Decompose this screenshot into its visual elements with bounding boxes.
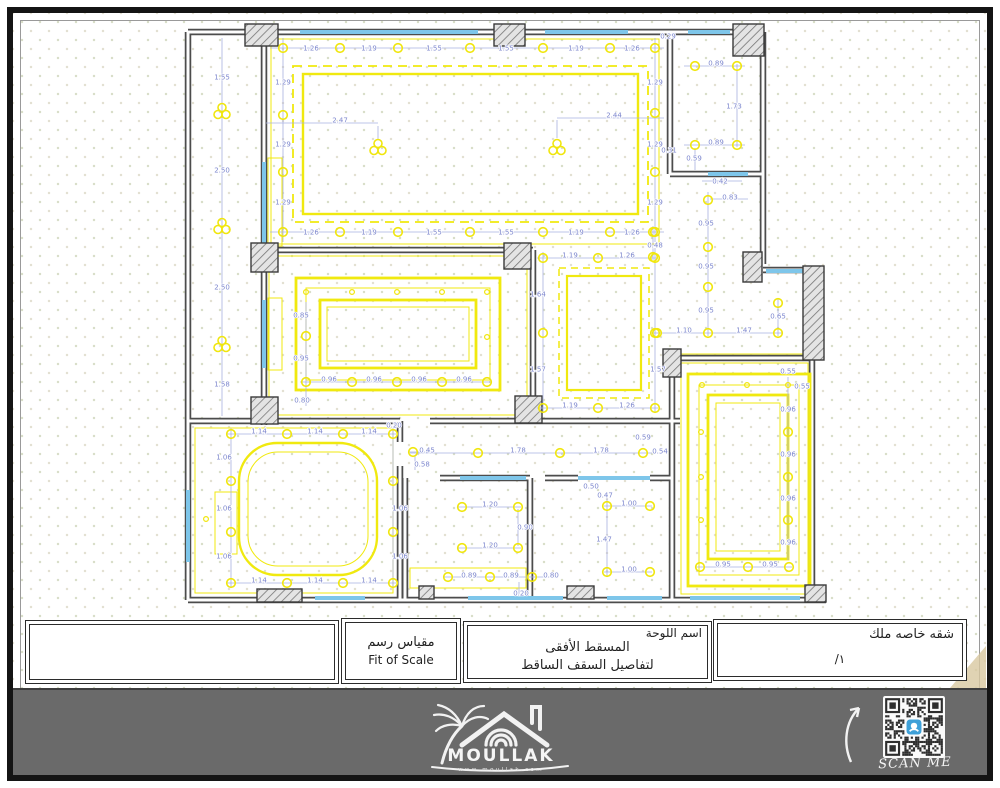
- svg-text:1.10: 1.10: [676, 326, 692, 334]
- svg-text:1.19: 1.19: [562, 251, 578, 259]
- svg-text:1.20: 1.20: [482, 500, 498, 508]
- svg-text:1.78: 1.78: [593, 446, 609, 454]
- svg-text:0.96: 0.96: [780, 538, 796, 546]
- svg-text:1.26: 1.26: [619, 401, 635, 409]
- svg-text:2.47: 2.47: [332, 116, 348, 124]
- svg-text:1.55: 1.55: [498, 228, 514, 236]
- svg-text:0.96: 0.96: [456, 375, 472, 383]
- svg-text:1.06: 1.06: [392, 552, 408, 560]
- svg-text:0.96: 0.96: [780, 405, 796, 413]
- svg-text:0.96: 0.96: [321, 375, 337, 383]
- svg-text:1.20: 1.20: [482, 541, 498, 549]
- svg-text:0.95: 0.95: [698, 219, 714, 227]
- svg-text:1.14: 1.14: [251, 576, 267, 584]
- svg-text:0.89: 0.89: [708, 59, 724, 67]
- svg-text:0.42: 0.42: [712, 177, 728, 185]
- svg-text:1.26: 1.26: [303, 228, 319, 236]
- sheet-number: /١: [714, 652, 966, 666]
- svg-text:1.29: 1.29: [647, 78, 663, 86]
- qr-block: SCAN ME: [839, 694, 959, 776]
- floor-plan-drawing: 1.552.502.501.581.261.191.551.551.191.26…: [0, 0, 1000, 620]
- svg-text:0.59: 0.59: [686, 154, 702, 162]
- svg-text:1.00: 1.00: [621, 565, 637, 573]
- svg-text:1.73: 1.73: [726, 102, 742, 110]
- svg-text:0.89: 0.89: [503, 571, 519, 579]
- svg-text:1.06: 1.06: [216, 552, 232, 560]
- svg-text:1.06: 1.06: [216, 504, 232, 512]
- svg-text:1.14: 1.14: [307, 576, 323, 584]
- svg-text:0.89: 0.89: [708, 138, 724, 146]
- svg-text:0.54: 0.54: [652, 447, 668, 455]
- svg-text:1.00: 1.00: [621, 499, 637, 507]
- svg-text:1.57: 1.57: [650, 365, 666, 373]
- svg-text:2.50: 2.50: [214, 166, 230, 174]
- scale-label-en: Fit of Scale: [368, 653, 434, 667]
- svg-text:1.06: 1.06: [216, 453, 232, 461]
- svg-text:0.95: 0.95: [698, 262, 714, 270]
- svg-text:1.64: 1.64: [530, 290, 546, 298]
- qr-code: [883, 696, 945, 758]
- svg-text:1.58: 1.58: [214, 380, 230, 388]
- svg-text:0.95: 0.95: [715, 560, 731, 568]
- drawing-sheet: 1.552.502.501.581.261.191.551.551.191.26…: [0, 0, 1000, 788]
- wifi-arcs-icon: [486, 730, 516, 745]
- svg-text:2.50: 2.50: [214, 283, 230, 291]
- svg-text:1.55: 1.55: [498, 44, 514, 52]
- brand-website: www.moullak.com: [458, 767, 544, 773]
- svg-text:1.14: 1.14: [361, 427, 377, 435]
- svg-text:1.29: 1.29: [275, 198, 291, 206]
- svg-text:1.55: 1.55: [426, 44, 442, 52]
- svg-text:0.45: 0.45: [419, 446, 435, 454]
- svg-text:1.14: 1.14: [251, 427, 267, 435]
- svg-text:1.26: 1.26: [303, 44, 319, 52]
- svg-text:1.26: 1.26: [619, 251, 635, 259]
- scale-label-ar: مقياس رسم: [367, 635, 434, 650]
- svg-text:0.85: 0.85: [293, 311, 309, 319]
- svg-text:1.78: 1.78: [510, 446, 526, 454]
- svg-text:0.95: 0.95: [293, 354, 309, 362]
- svg-text:1.26: 1.26: [624, 44, 640, 52]
- sheet-name-line2: لتفاصيل السقف الساقط: [521, 658, 653, 673]
- svg-text:0.20: 0.20: [513, 589, 529, 597]
- arrow-icon: [841, 700, 867, 764]
- svg-text:0.96: 0.96: [411, 375, 427, 383]
- svg-text:1.29: 1.29: [275, 140, 291, 148]
- svg-text:0.47: 0.47: [597, 491, 613, 499]
- svg-text:0.96: 0.96: [780, 450, 796, 458]
- wall-layer: [188, 32, 826, 600]
- svg-text:0.80: 0.80: [294, 396, 310, 404]
- owner-box: شقه خاصه ملك /١: [713, 619, 967, 681]
- svg-text:0.96: 0.96: [780, 494, 796, 502]
- svg-text:2.44: 2.44: [606, 111, 622, 119]
- svg-text:0.95: 0.95: [762, 560, 778, 568]
- owner-name: شقه خاصه ملك: [869, 627, 954, 642]
- svg-text:0.83: 0.83: [722, 193, 738, 201]
- svg-text:1.57: 1.57: [530, 365, 546, 373]
- scale-box: مقياس رسم Fit of Scale: [341, 618, 461, 684]
- svg-text:0.50: 0.50: [583, 482, 599, 490]
- svg-text:1.14: 1.14: [307, 427, 323, 435]
- svg-text:0.80: 0.80: [543, 571, 559, 579]
- svg-text:1.26: 1.26: [624, 228, 640, 236]
- svg-text:1.14: 1.14: [361, 576, 377, 584]
- svg-text:1.55: 1.55: [214, 73, 230, 81]
- svg-text:1.29: 1.29: [647, 198, 663, 206]
- svg-text:1.06: 1.06: [392, 504, 408, 512]
- brand-logo: MOULLAK www.moullak.com: [400, 691, 600, 781]
- svg-text:0.29: 0.29: [660, 32, 676, 40]
- svg-text:1.19: 1.19: [562, 401, 578, 409]
- svg-text:0.89: 0.89: [461, 571, 477, 579]
- svg-text:0.58: 0.58: [414, 460, 430, 468]
- svg-text:0.20: 0.20: [386, 421, 402, 429]
- svg-text:0.31: 0.31: [661, 146, 677, 154]
- svg-text:1.19: 1.19: [568, 44, 584, 52]
- svg-text:0.48: 0.48: [647, 241, 663, 249]
- svg-text:0.65: 0.65: [770, 312, 786, 320]
- sheet-name-line1: المسقط الأفقى: [545, 640, 629, 655]
- svg-text:0.95: 0.95: [698, 306, 714, 314]
- svg-text:0.96: 0.96: [366, 375, 382, 383]
- house-roof-icon: [462, 707, 547, 745]
- svg-text:1.47: 1.47: [596, 535, 612, 543]
- svg-text:1.55: 1.55: [426, 228, 442, 236]
- spotlight-layer: [204, 44, 794, 588]
- svg-text:0.90: 0.90: [517, 523, 533, 531]
- window-layer: [188, 32, 803, 598]
- svg-text:1.29: 1.29: [275, 78, 291, 86]
- svg-text:0.55: 0.55: [780, 367, 796, 375]
- footer-band: MOULLAK www.moullak.com SCAN ME: [13, 688, 987, 777]
- svg-text:0.59: 0.59: [635, 433, 651, 441]
- svg-text:1.19: 1.19: [361, 228, 377, 236]
- notes-box: [25, 620, 339, 684]
- svg-text:1.19: 1.19: [568, 228, 584, 236]
- ceiling-layer: [195, 39, 810, 594]
- svg-text:0.55: 0.55: [794, 382, 810, 390]
- brand-name: MOULLAK: [447, 746, 554, 766]
- scan-me-label: SCAN ME: [875, 755, 955, 773]
- svg-text:1.47: 1.47: [736, 326, 752, 334]
- svg-text:1.19: 1.19: [361, 44, 377, 52]
- sheet-name-box: اسم اللوحة المسقط الأفقى لتفاصيل السقف ا…: [463, 621, 712, 683]
